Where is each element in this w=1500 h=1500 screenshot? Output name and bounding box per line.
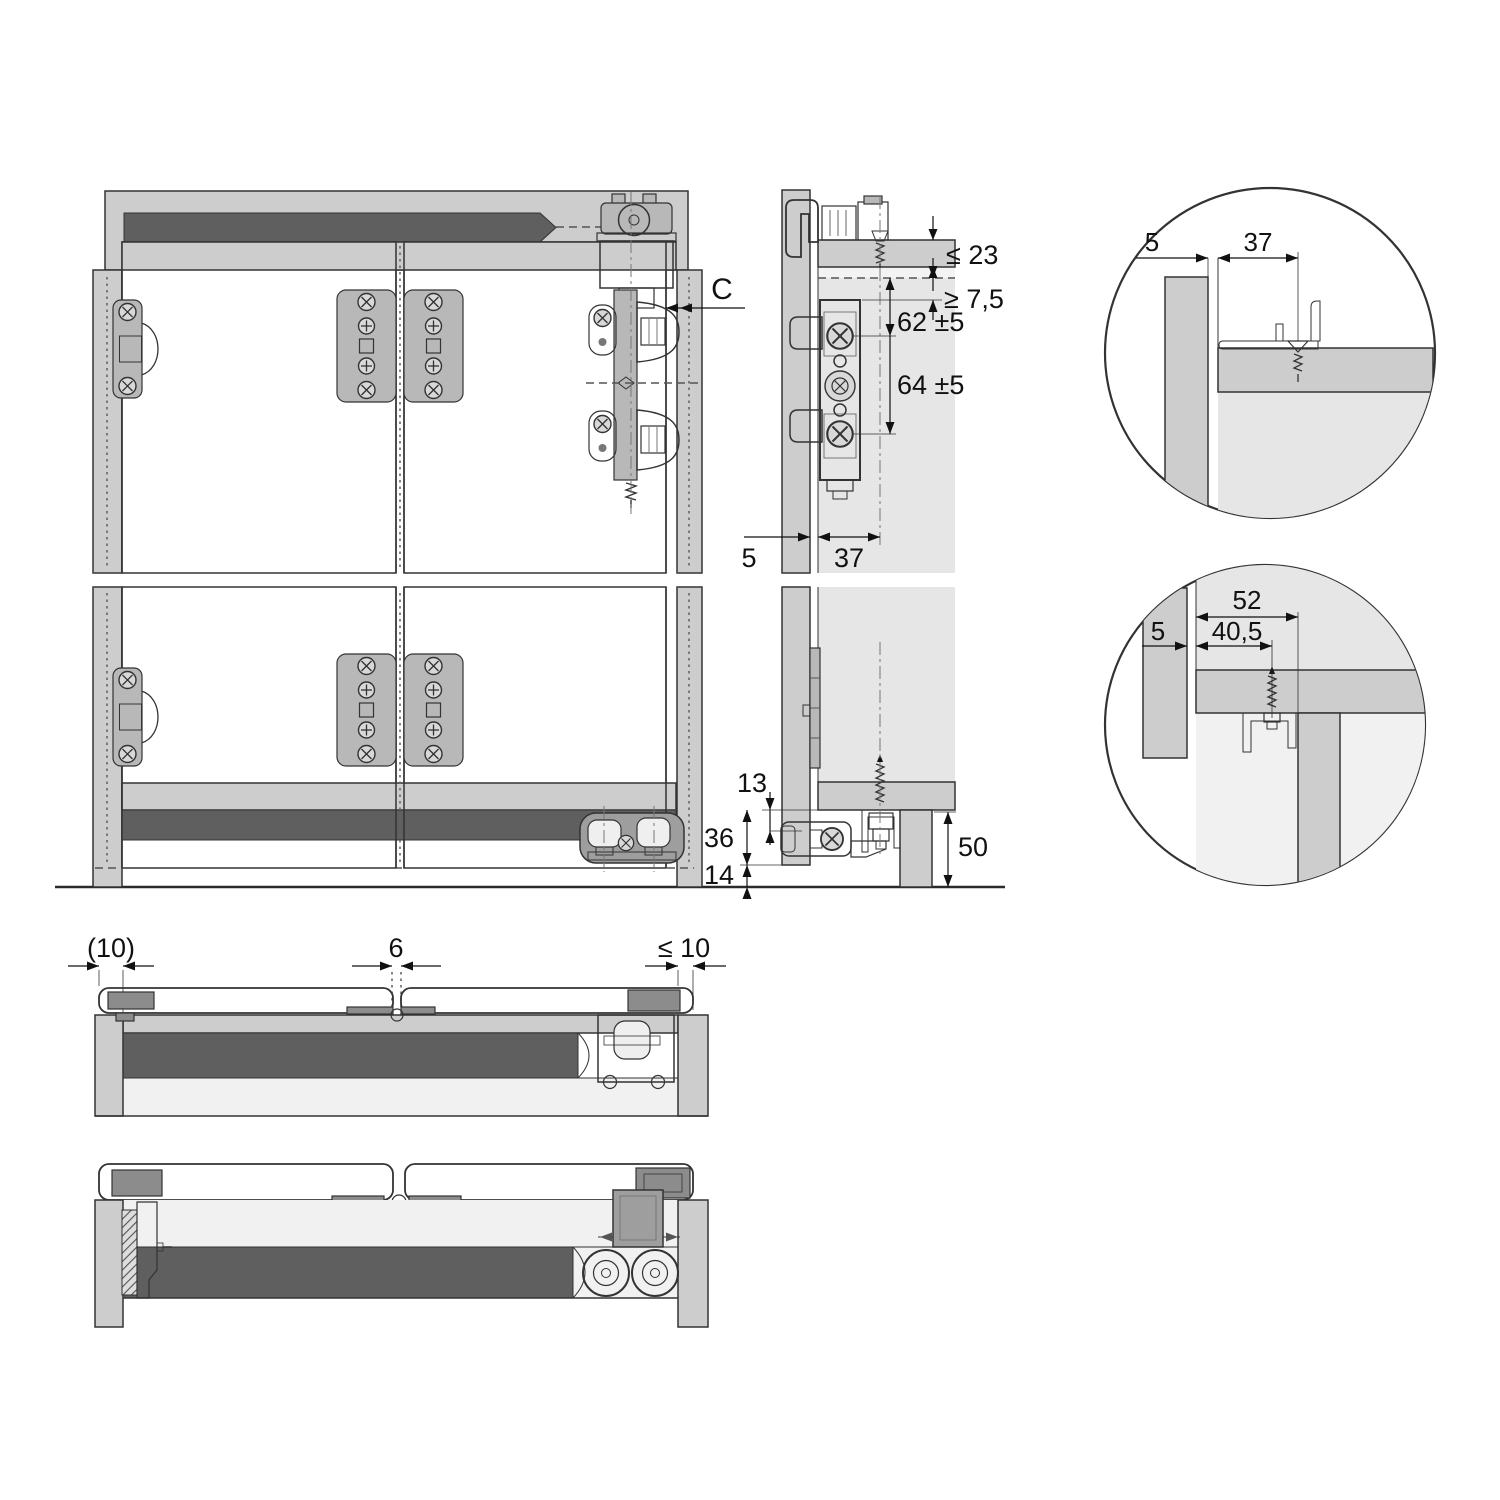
technical-drawing-page: C bbox=[0, 0, 1500, 1500]
dim-front-gap-label: 5 bbox=[741, 543, 756, 573]
dim-top-thickness-label: ≤ 23 bbox=[946, 240, 998, 270]
plan-section-lower bbox=[95, 1164, 708, 1327]
dim-plan-overlay-label: (10) bbox=[87, 933, 135, 963]
dim-detail-bottom-channel-label: 52 bbox=[1233, 585, 1262, 615]
dim-detail-bottom-offset-label: 40,5 bbox=[1212, 616, 1263, 646]
dim-floor-clearance-label: 14 bbox=[704, 860, 734, 890]
drawing-canvas: C bbox=[0, 0, 1500, 1500]
dim-plan-joint-label: 6 bbox=[388, 933, 403, 963]
detail-circle-bottom: 52 40,5 5 bbox=[1105, 565, 1430, 887]
side-lower-part bbox=[781, 587, 955, 887]
dim-c-label: C bbox=[711, 273, 733, 306]
bottom-roller-assembly bbox=[580, 806, 684, 872]
side-section-view: ≤ 23 ≥ 7,5 62 ±5 64 ±5 5 bbox=[704, 190, 1004, 899]
dim-detail-bottom-gap-label: 5 bbox=[1151, 616, 1165, 646]
dim-plinth-height-label: 50 bbox=[958, 832, 988, 862]
plan-upper-dimensions: (10) 6 ≤ 10 bbox=[68, 933, 726, 1013]
dim-bottom-track-label: 13 bbox=[737, 768, 767, 798]
dim-bottom-bracket-label: 36 bbox=[704, 823, 734, 853]
plan-section-upper: (10) 6 ≤ 10 bbox=[68, 933, 726, 1116]
dim-detail-top-offset-label: 37 bbox=[1244, 227, 1273, 257]
dim-screw-spacing-lower-label: 64 ±5 bbox=[897, 370, 964, 400]
dim-screw-spacing-upper-label: 62 ±5 bbox=[897, 307, 964, 337]
detail-circle-top: 5 37 bbox=[1105, 188, 1435, 522]
dim-plan-max-overlay-label: ≤ 10 bbox=[658, 933, 710, 963]
front-view: C bbox=[93, 191, 745, 887]
dim-screw-offset-label: 37 bbox=[834, 543, 864, 573]
dim-detail-top-gap-label: 5 bbox=[1145, 227, 1159, 257]
